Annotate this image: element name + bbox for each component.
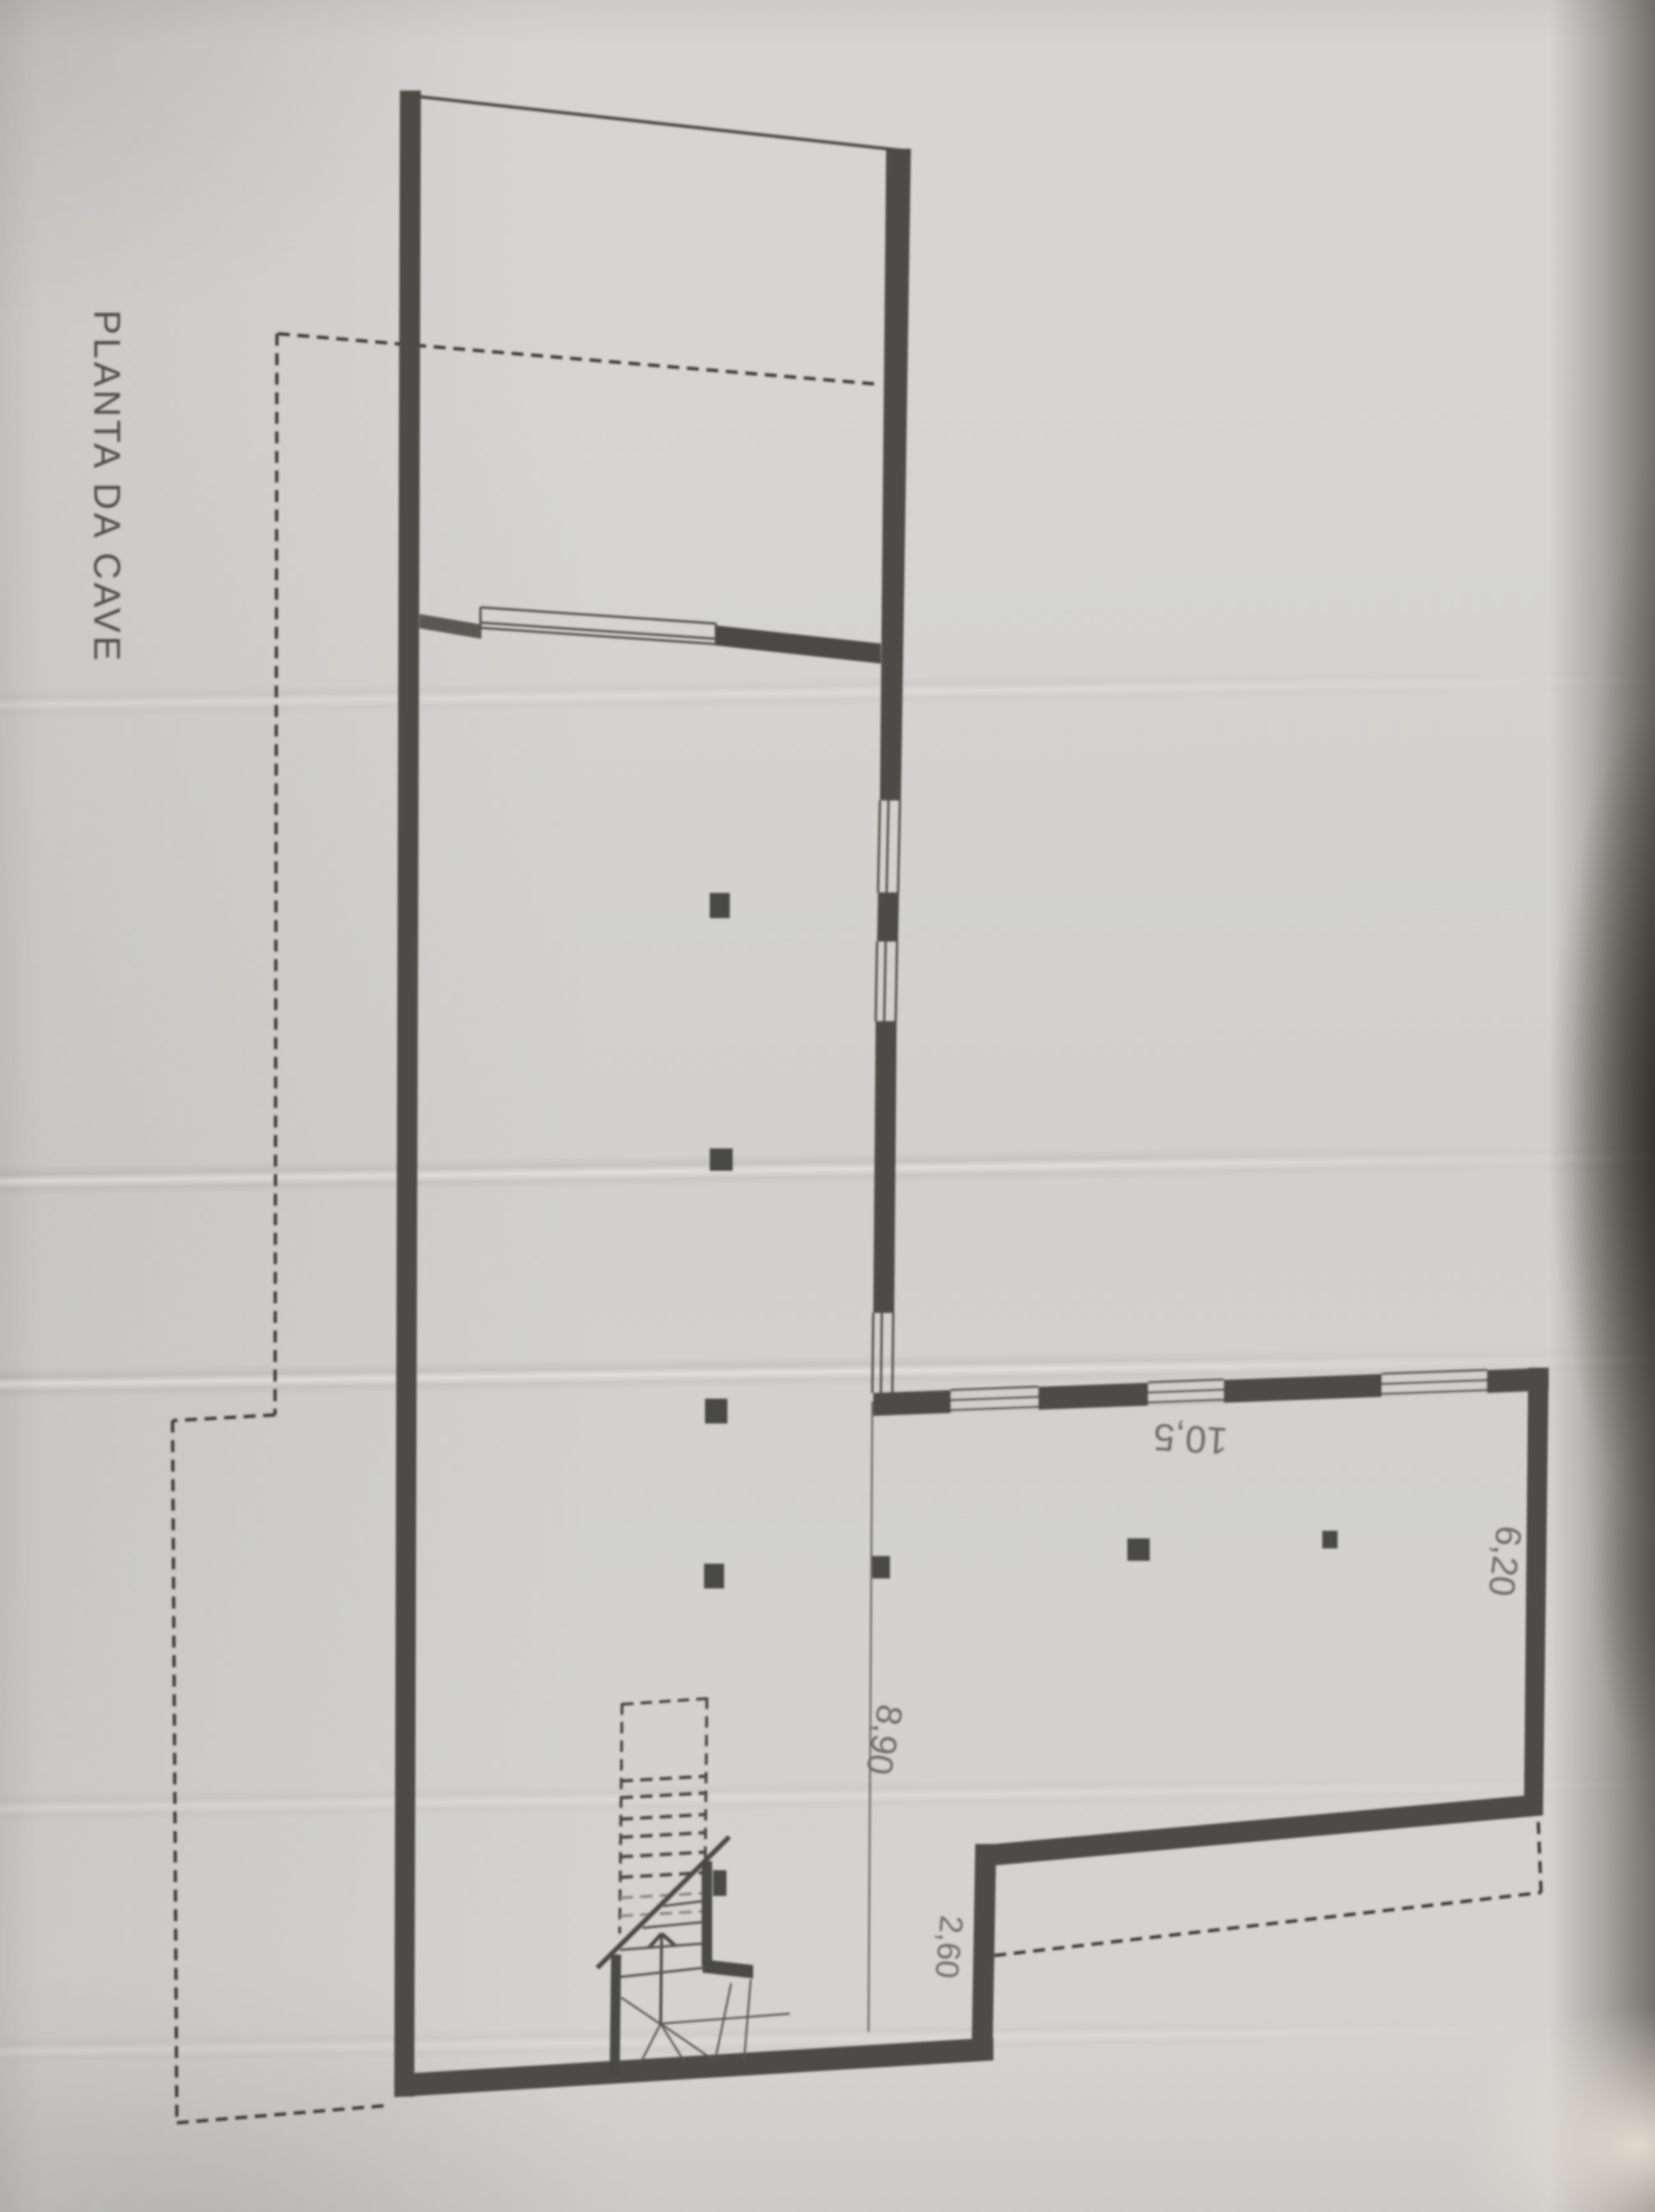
svg-text:10,5: 10,5 [1152, 1416, 1229, 1463]
svg-text:PLANTA DA CAVE: PLANTA DA CAVE [86, 310, 128, 662]
svg-text:6,20: 6,20 [1481, 1524, 1529, 1598]
svg-text:8,90: 8,90 [858, 1701, 910, 1778]
svg-text:2,60: 2,60 [929, 1914, 970, 1980]
